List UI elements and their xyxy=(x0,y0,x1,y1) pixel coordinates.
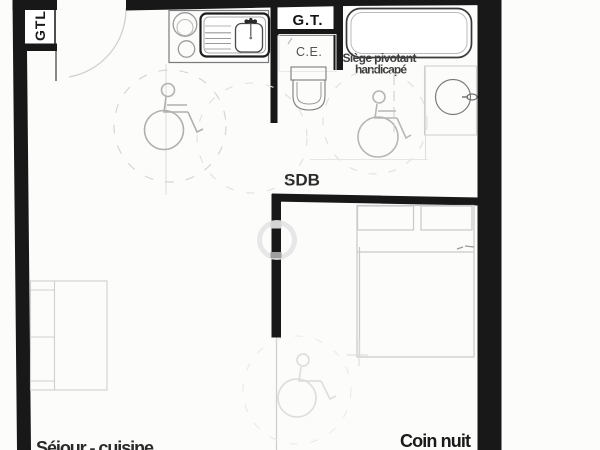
svg-text:G.T.: G.T. xyxy=(293,12,323,29)
svg-text:C.E.: C.E. xyxy=(296,45,322,59)
svg-text:handicapé: handicapé xyxy=(355,63,407,77)
svg-text:GTL: GTL xyxy=(32,11,48,41)
svg-text:Coin nuit: Coin nuit xyxy=(400,431,471,450)
svg-text:SDB: SDB xyxy=(284,171,320,190)
svg-text:Séjour - cuisine: Séjour - cuisine xyxy=(36,438,154,450)
